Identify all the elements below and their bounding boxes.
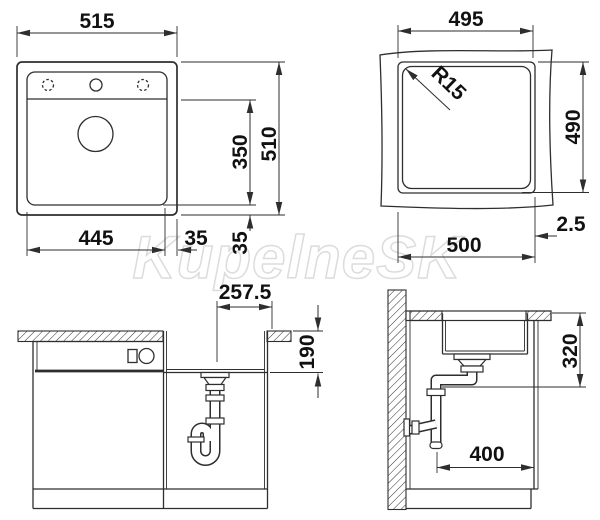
- worktop-hatch-left: [18, 331, 163, 342]
- dim-overall-width-label: 515: [79, 10, 114, 33]
- cabinet-side-view: 320 400: [388, 290, 586, 510]
- dim-cutout-height-label: 490: [562, 109, 585, 144]
- sink-top-view: 515 510 350 35 445 35: [17, 10, 285, 256]
- dim-edge-gap-label: 2.5: [556, 213, 586, 236]
- tap-hole-right: [138, 80, 149, 91]
- strainer-flange-side: [454, 354, 490, 360]
- cutout-edge: [398, 62, 535, 193]
- wall-flange: [404, 419, 410, 436]
- technical-drawing-page: KupelneSK 515 510 350 35 445 35: [0, 0, 600, 520]
- siphon-side: [404, 354, 490, 449]
- worktop-hatch-right: [267, 331, 291, 342]
- strainer-body-side: [458, 360, 486, 367]
- dim-outlet-height-label: 320: [559, 333, 582, 368]
- worktop-piece-outline: [380, 50, 553, 209]
- cabinet-front-view: 257.5 190: [18, 281, 323, 509]
- sink-outer-edge: [17, 62, 177, 215]
- technical-drawing-canvas: KupelneSK 515 510 350 35 445 35: [0, 0, 600, 520]
- strainer-flange: [201, 373, 229, 378]
- dim-bowl-width-label: 445: [78, 227, 113, 250]
- wall-hatch: [388, 290, 406, 510]
- siphon-front: [188, 373, 229, 461]
- dim-cutout-bottom-width-label: 500: [446, 234, 481, 257]
- pipe-end-cap: [430, 442, 442, 449]
- dim-corner-radius-label: R15: [427, 62, 471, 106]
- dim-center-to-edge-label: 257.5: [219, 281, 272, 304]
- dim-bottom-margin-label: 35: [229, 231, 252, 255]
- strainer-body: [204, 378, 226, 385]
- drain-hole: [78, 117, 113, 152]
- tap-hole-center: [90, 79, 102, 91]
- dim-bowl-depth-label: 190: [296, 334, 319, 369]
- dim-side-margin-label: 35: [184, 227, 208, 250]
- control-rect-icon: [128, 350, 137, 363]
- dim-outlet-offset-label: 400: [469, 443, 504, 466]
- dim-bowl-inner-height-label: 350: [229, 134, 252, 169]
- sink-bowl-edge: [27, 72, 167, 205]
- dim-cutout-top-width-label: 495: [448, 8, 483, 31]
- dim-overall-height-label: 510: [258, 126, 281, 161]
- tap-hole-left: [43, 80, 54, 91]
- control-knob-icon: [139, 349, 154, 364]
